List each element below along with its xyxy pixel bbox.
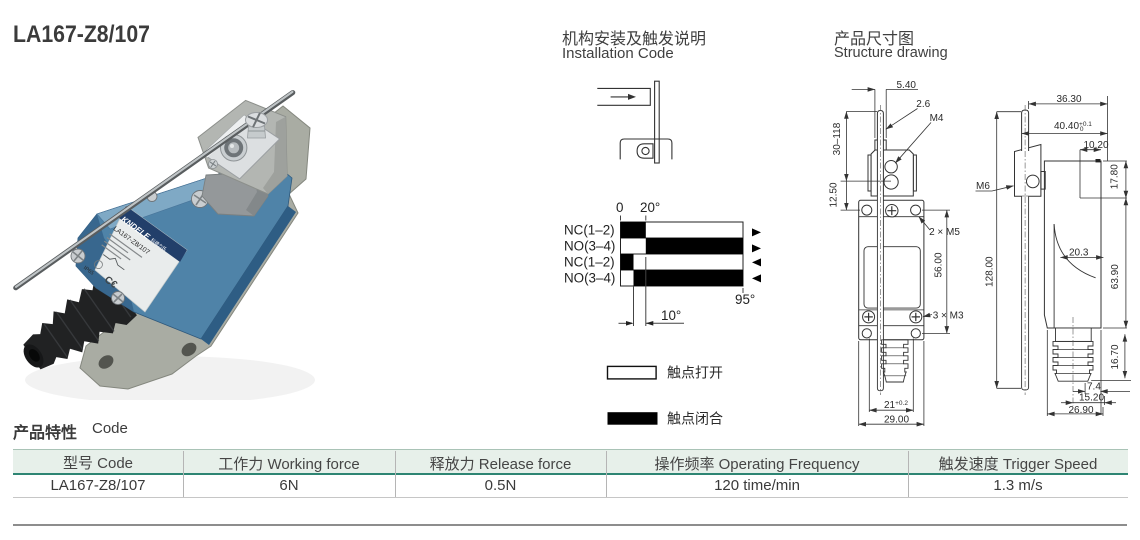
- svg-text:21+0.2: 21+0.2: [884, 400, 908, 411]
- svg-text:10.20: 10.20: [1084, 140, 1109, 151]
- svg-text:NO(3–4): NO(3–4): [564, 239, 615, 254]
- svg-text:触点闭合: 触点闭合: [667, 410, 723, 426]
- svg-text:2 × M5: 2 × M5: [929, 227, 960, 238]
- svg-text:40.40+0.10: 40.40+0.10: [1054, 121, 1092, 133]
- svg-text:16.70: 16.70: [1110, 344, 1121, 369]
- svg-text:12.50: 12.50: [829, 182, 840, 207]
- svg-text:29.00: 29.00: [884, 415, 909, 426]
- svg-text:10°: 10°: [661, 308, 681, 323]
- svg-text:36.30: 36.30: [1057, 94, 1082, 105]
- svg-text:7.4: 7.4: [1087, 381, 1101, 392]
- svg-text:0: 0: [616, 200, 623, 215]
- svg-text:56.00: 56.00: [934, 252, 945, 277]
- svg-text:26.90: 26.90: [1069, 405, 1094, 416]
- svg-text:触点打开: 触点打开: [667, 365, 723, 381]
- svg-text:20.3: 20.3: [1069, 248, 1089, 259]
- svg-text:30–118: 30–118: [832, 122, 843, 155]
- svg-text:5.40: 5.40: [897, 80, 917, 91]
- svg-text:3 × M3: 3 × M3: [933, 311, 964, 322]
- svg-text:NO(3–4): NO(3–4): [564, 271, 615, 286]
- svg-text:128.00: 128.00: [985, 256, 996, 287]
- svg-text:M4: M4: [930, 113, 944, 124]
- svg-text:17.80: 17.80: [1110, 164, 1121, 189]
- svg-text:20°: 20°: [640, 200, 660, 215]
- svg-text:NC(1–2): NC(1–2): [564, 255, 615, 270]
- svg-text:95°: 95°: [735, 292, 755, 307]
- svg-text:M6: M6: [976, 181, 990, 192]
- svg-text:15.20: 15.20: [1079, 393, 1104, 404]
- svg-text:NC(1–2): NC(1–2): [564, 223, 615, 238]
- svg-text:63.90: 63.90: [1110, 264, 1121, 289]
- svg-text:2.6: 2.6: [916, 99, 930, 110]
